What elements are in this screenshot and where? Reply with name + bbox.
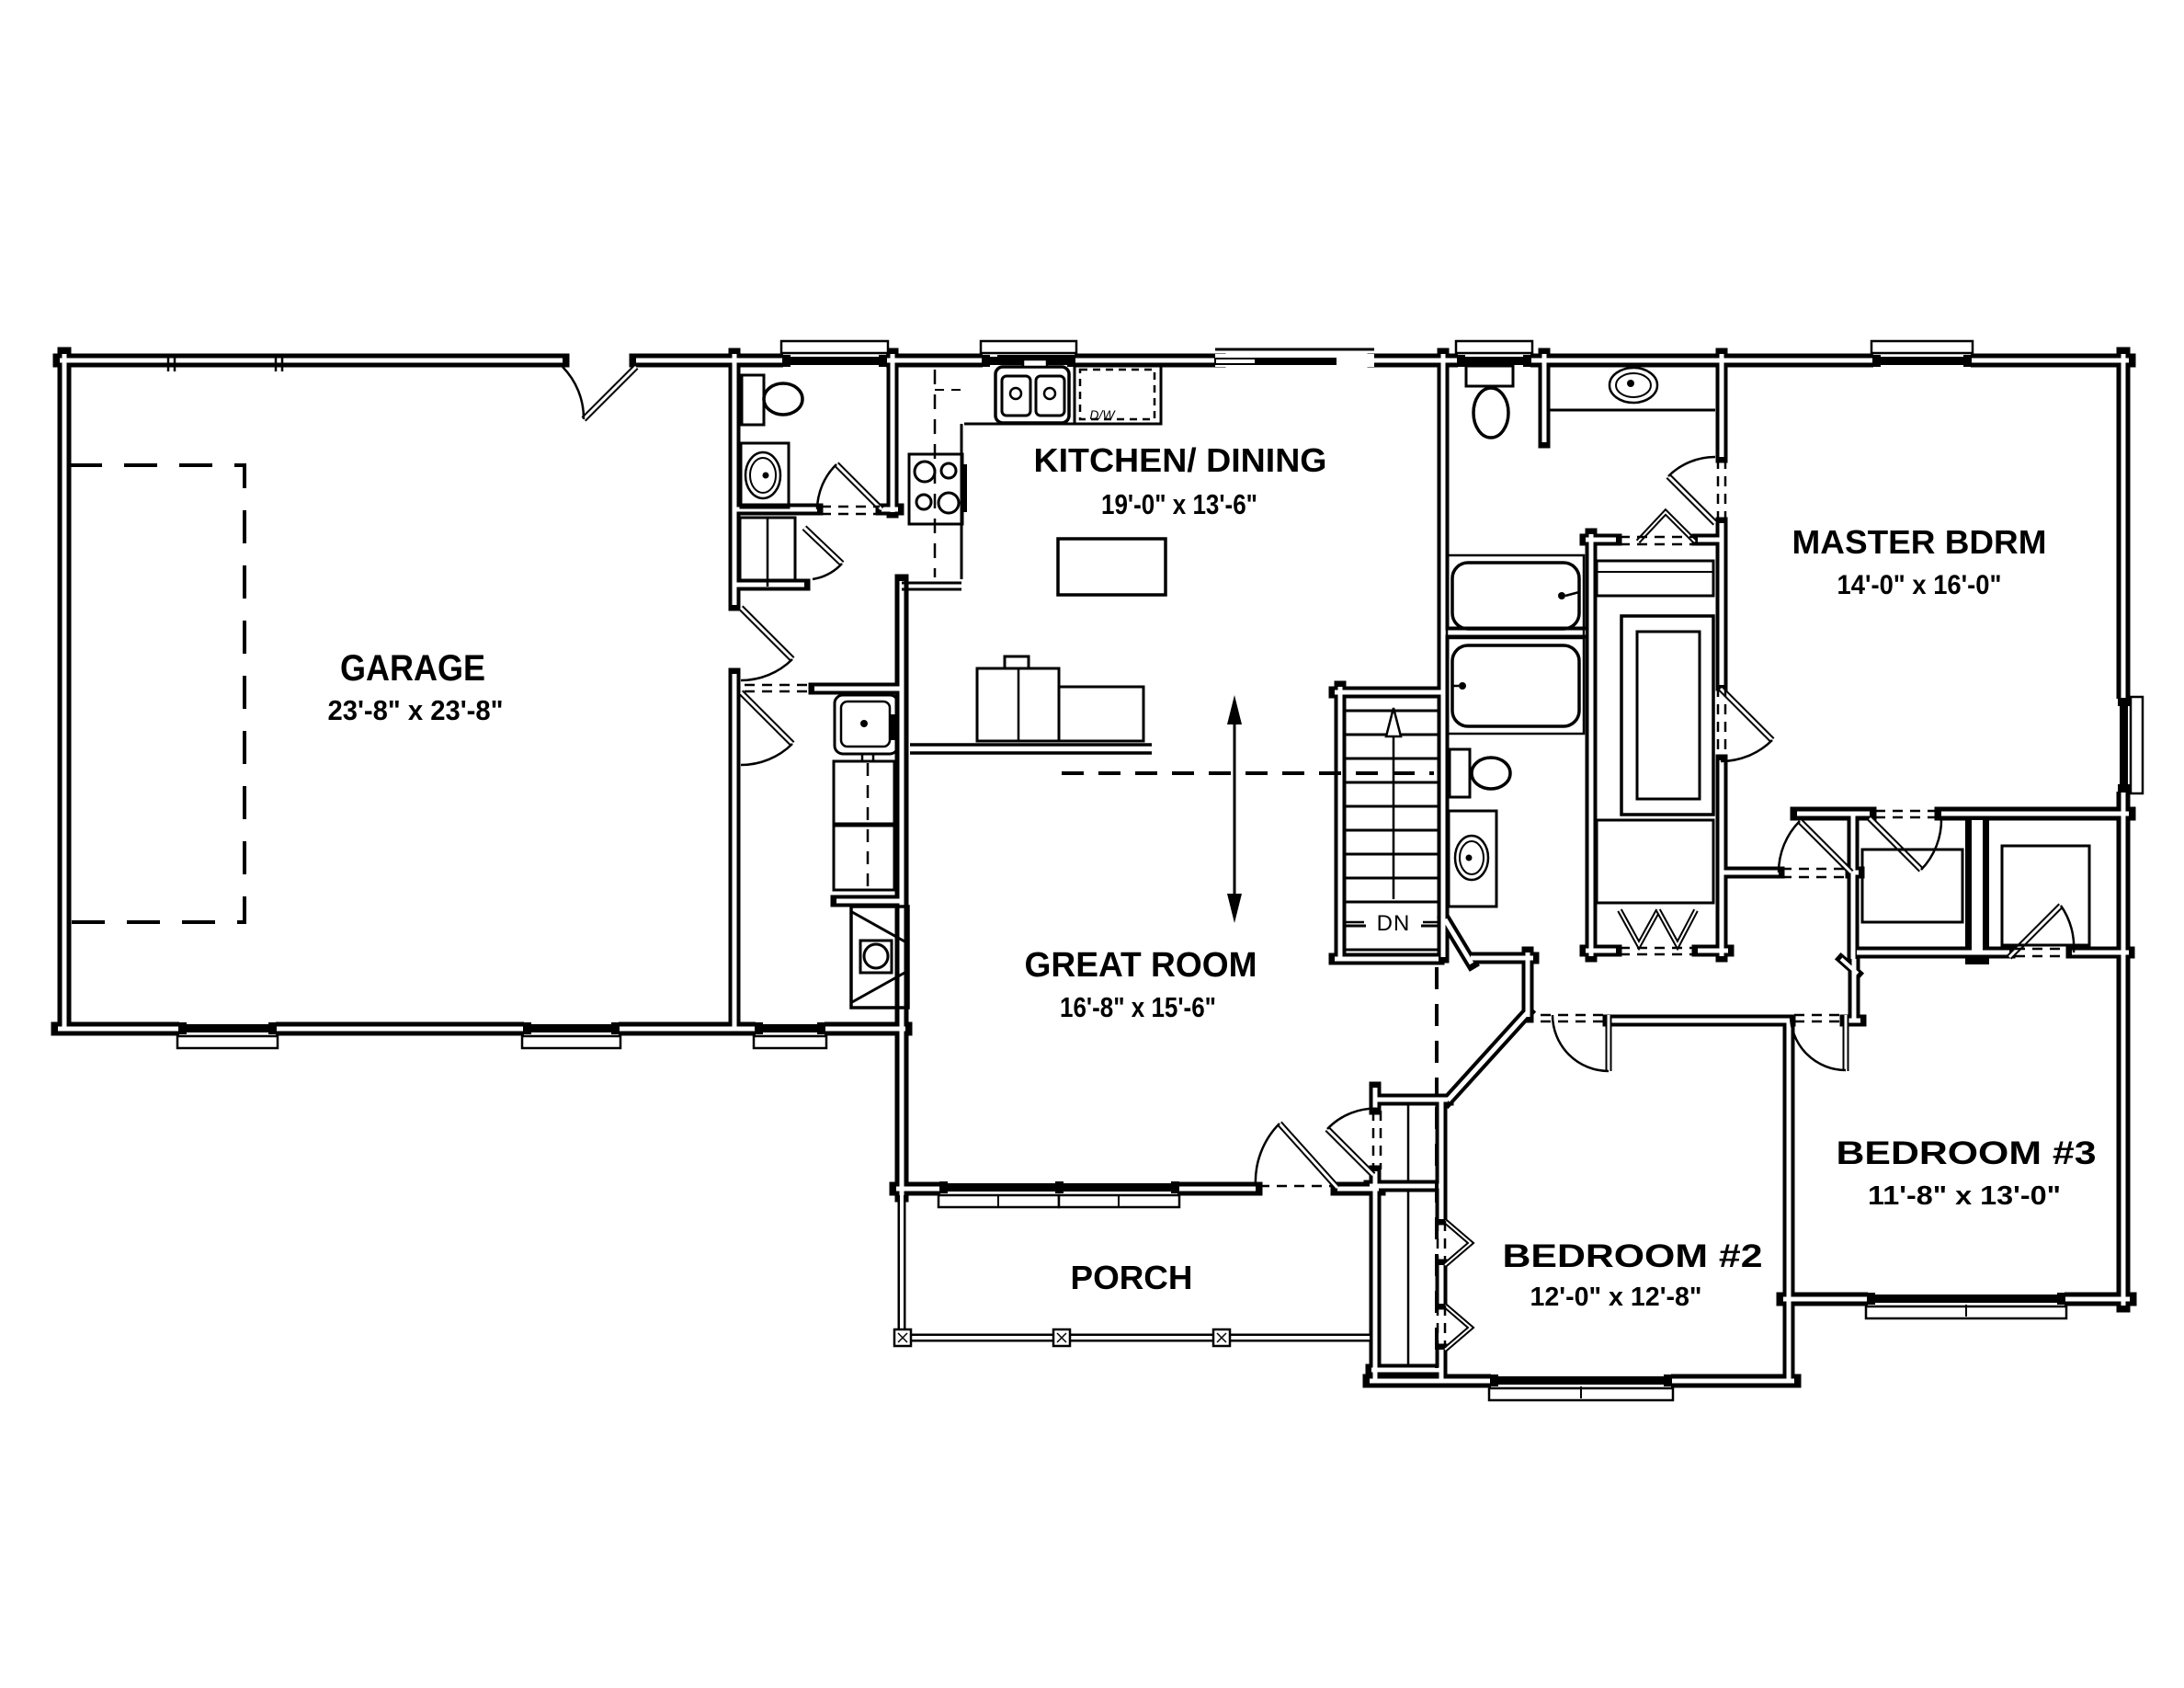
- svg-text:14'-0" x 16'-0": 14'-0" x 16'-0": [1837, 570, 2002, 600]
- svg-text:GARAGE: GARAGE: [340, 648, 485, 689]
- svg-text:11'-8" x 13'-0": 11'-8" x 13'-0": [1868, 1181, 2061, 1211]
- svg-text:PORCH: PORCH: [1071, 1259, 1193, 1296]
- svg-text:19'-0" x 13'-6": 19'-0" x 13'-6": [1101, 488, 1257, 520]
- svg-text:KITCHEN/ DINING: KITCHEN/ DINING: [1034, 441, 1327, 479]
- svg-text:DN: DN: [1377, 911, 1411, 936]
- svg-text:BEDROOM #3: BEDROOM #3: [1837, 1135, 2097, 1171]
- svg-text:23'-8" x 23'-8": 23'-8" x 23'-8": [328, 694, 504, 726]
- svg-text:BEDROOM #2: BEDROOM #2: [1503, 1238, 1763, 1274]
- svg-text:16'-8" x 15'-6": 16'-8" x 15'-6": [1060, 991, 1216, 1023]
- svg-text:MASTER BDRM: MASTER BDRM: [1792, 523, 2047, 561]
- svg-text:D/W: D/W: [1089, 407, 1116, 422]
- svg-text:12'-0" x 12'-8": 12'-0" x 12'-8": [1530, 1283, 1702, 1312]
- svg-text:GREAT ROOM: GREAT ROOM: [1025, 946, 1257, 985]
